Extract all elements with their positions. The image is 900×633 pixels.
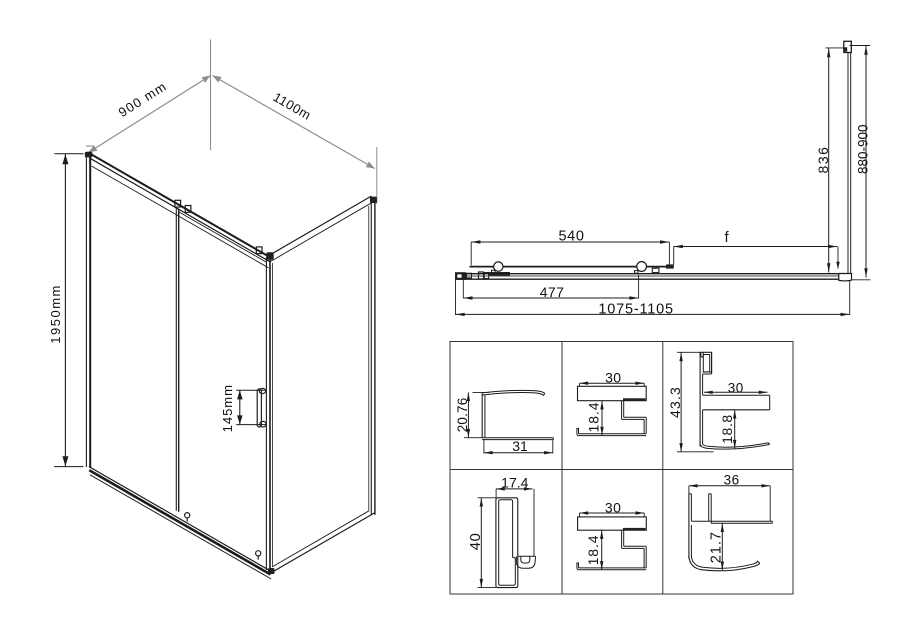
svg-text:30: 30 xyxy=(728,381,744,396)
svg-text:43.3: 43.3 xyxy=(667,386,683,418)
svg-text:20.76: 20.76 xyxy=(455,398,470,433)
svg-text:836: 836 xyxy=(815,146,831,174)
svg-text:540: 540 xyxy=(559,229,585,245)
svg-text:18.8: 18.8 xyxy=(719,414,735,444)
svg-text:1075-1105: 1075-1105 xyxy=(598,302,673,318)
svg-text:30: 30 xyxy=(605,370,621,386)
svg-text:17.4: 17.4 xyxy=(501,475,528,491)
svg-text:477: 477 xyxy=(540,284,565,300)
svg-text:18.4: 18.4 xyxy=(585,535,601,566)
svg-text:36: 36 xyxy=(724,473,740,488)
svg-text:18.4: 18.4 xyxy=(586,402,602,433)
svg-text:31: 31 xyxy=(512,438,528,454)
svg-text:880-900: 880-900 xyxy=(856,124,871,174)
svg-text:1950mm: 1950mm xyxy=(48,284,63,344)
svg-text:40: 40 xyxy=(467,533,484,551)
svg-text:145mm: 145mm xyxy=(220,384,235,432)
svg-text:21.7: 21.7 xyxy=(709,531,725,563)
svg-text:30: 30 xyxy=(605,499,621,515)
